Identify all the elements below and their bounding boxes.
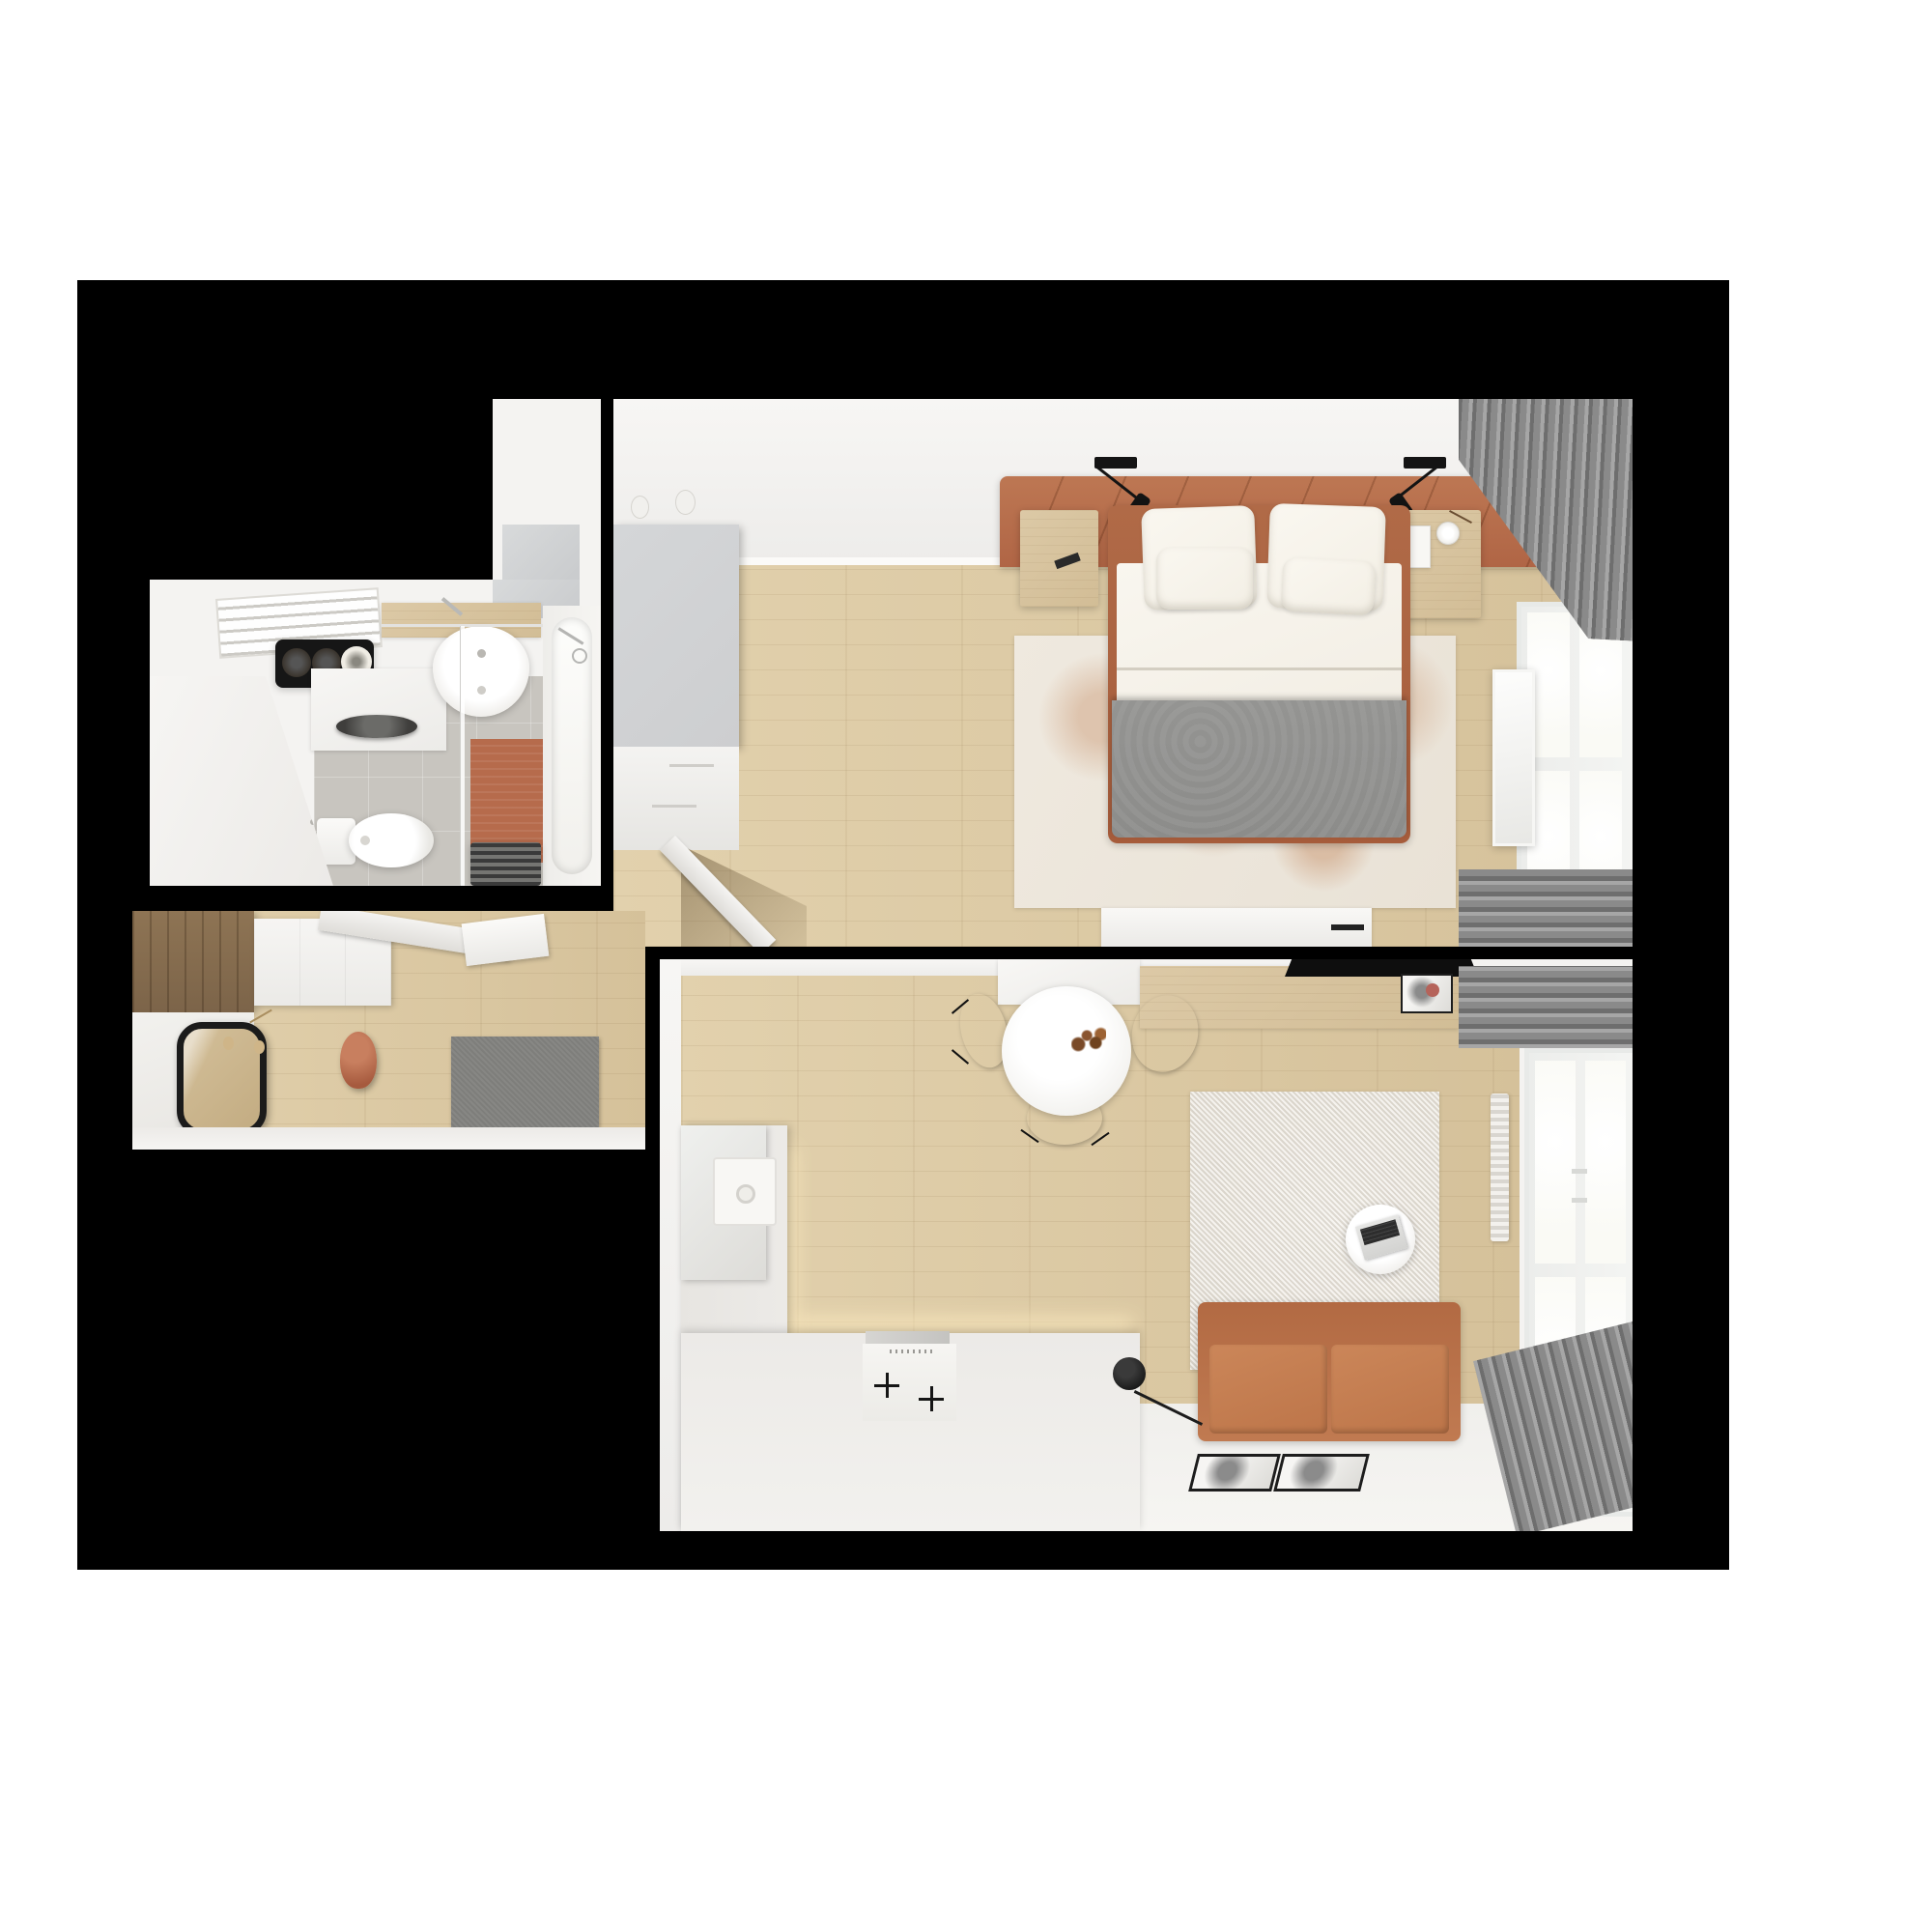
sink-drain: [477, 686, 486, 695]
bedroom-curtain-bottom: [1459, 869, 1633, 947]
gray-blanket: [1112, 700, 1406, 838]
induction-hob: [863, 1344, 956, 1421]
key-hook-icon: [223, 1037, 234, 1050]
hall-wall-shelf: [462, 914, 550, 966]
vent-strip: [866, 1331, 950, 1344]
tub-faucet-icon: [572, 648, 587, 664]
light-switch-icon: [675, 490, 696, 515]
hob-controls: [890, 1350, 932, 1353]
toilet-button: [360, 836, 370, 845]
bathroom-panel: [150, 580, 601, 886]
sink-drain: [477, 649, 486, 658]
wardrobe-handle: [669, 764, 714, 767]
living-top-wall: [660, 959, 998, 976]
glass-partition: [460, 626, 465, 886]
living-left-wall: [660, 959, 681, 1531]
art-red-dot: [1426, 983, 1439, 997]
floor-lamp-base: [1113, 1357, 1146, 1390]
leather-sofa: [1198, 1302, 1461, 1441]
double-bed: [1108, 505, 1410, 843]
wardrobe-handle: [652, 805, 696, 808]
sink-drain: [736, 1184, 755, 1204]
leaning-picture-frame: [1188, 1454, 1281, 1492]
hall-bottom-wall: [132, 1127, 645, 1150]
window-pane: [1535, 1061, 1576, 1264]
sofa-seat-cushion: [1331, 1345, 1449, 1434]
window-handle-icon: [1572, 1169, 1587, 1174]
console-table: [1101, 908, 1372, 947]
window-handle-icon: [1572, 1198, 1587, 1203]
alarm-clock: [1436, 522, 1460, 545]
leaning-mirror: [1492, 669, 1535, 846]
sunglasses-icon: [1054, 553, 1081, 569]
bathroom-entry-partition: [150, 676, 333, 886]
lamp-arm: [1094, 465, 1141, 501]
dining-table: [1002, 986, 1131, 1116]
nightstand-left: [1020, 510, 1098, 607]
laptop-keyboard: [1360, 1219, 1400, 1245]
rolled-towel-dark: [282, 648, 311, 677]
under-cabinet-glow: [795, 1319, 1133, 1330]
hallway-panel: [132, 911, 645, 1150]
wardrobe-top: [613, 525, 739, 747]
flower-vase: [1071, 1027, 1106, 1056]
sideboard-art-frame: [1401, 974, 1453, 1013]
pillow-front-left: [1156, 548, 1253, 610]
terracotta-vase: [340, 1032, 377, 1089]
duvet-fold-line: [1117, 668, 1402, 670]
sofa-seat-cushion: [1209, 1345, 1327, 1434]
kitchen-sink: [713, 1157, 777, 1226]
leaning-picture-frame: [1273, 1454, 1370, 1492]
bathroom-upper-wall-column: [493, 399, 601, 580]
render-backdrop: [77, 280, 1729, 1570]
hall-round-mirror: [177, 1022, 267, 1136]
dark-countertop-basin: [336, 715, 417, 738]
hob-burner-icon: [915, 1382, 948, 1415]
hob-burner-icon: [870, 1369, 903, 1402]
living-curtain-top: [1459, 966, 1633, 1048]
floor-plan-page: [0, 0, 1932, 1932]
living-room-panel: [660, 959, 1633, 1531]
tall-cabinet-top: [502, 525, 580, 580]
window-pane: [1585, 1061, 1626, 1264]
wardrobe-front: [613, 747, 739, 850]
lamp-bracket: [1094, 457, 1137, 469]
radiator: [1491, 1094, 1509, 1241]
pillow-front-right: [1281, 557, 1377, 616]
bedroom-gray-wardrobe: [613, 525, 739, 850]
vanity-cabinet: [311, 668, 446, 751]
bathtub: [543, 606, 601, 886]
towel-radiator: [470, 842, 541, 886]
partition-screw: [289, 732, 295, 738]
gray-doormat: [451, 1037, 599, 1127]
bedroom-panel: [613, 399, 1633, 947]
bedroom-right-wall: [1459, 399, 1633, 947]
light-switch-icon: [631, 496, 649, 519]
toilet-bowl: [349, 813, 434, 867]
hall-dark-wardrobe: [132, 911, 254, 1012]
key-hook-icon: [254, 1040, 265, 1054]
console-items: [1331, 924, 1364, 930]
